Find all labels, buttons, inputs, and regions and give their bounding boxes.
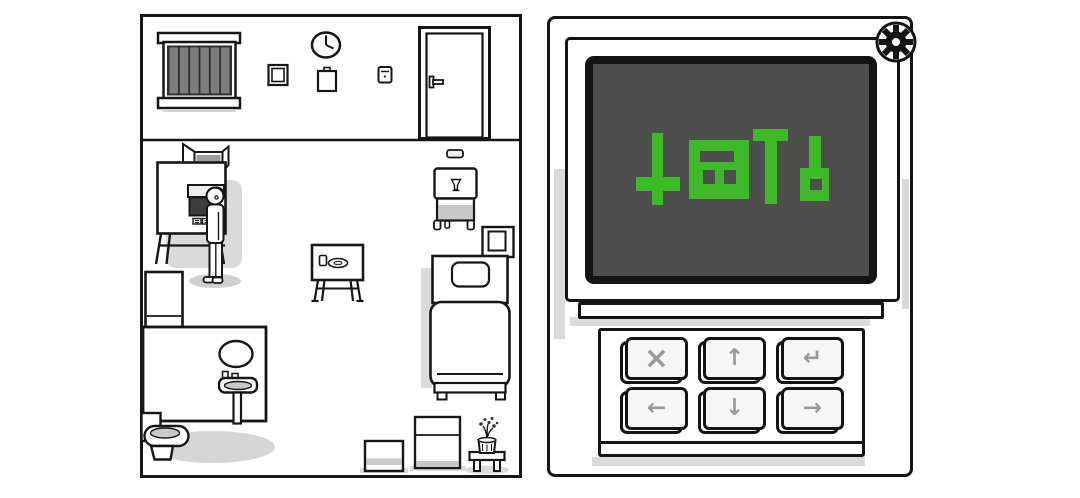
glyph-slotted-square-hole bbox=[700, 151, 734, 162]
key-right[interactable]: → bbox=[781, 387, 844, 430]
key-cancel[interactable]: × bbox=[625, 337, 688, 380]
small-picture-frame[interactable] bbox=[269, 65, 288, 85]
glyph-slotted-square-hole bbox=[703, 170, 715, 184]
glyph-slotted-square bbox=[689, 140, 749, 199]
screen-symbols bbox=[594, 67, 869, 276]
glyph-inverted-cross bbox=[636, 177, 680, 191]
arrow-up-icon: ↑ bbox=[725, 347, 744, 370]
key-down[interactable]: ↓ bbox=[703, 387, 766, 430]
terminal-panel: × ↑ ↵ ← ↓ → bbox=[547, 16, 913, 477]
monitor bbox=[565, 37, 900, 302]
bathroom-wall bbox=[143, 327, 266, 421]
bed[interactable] bbox=[431, 256, 510, 400]
settings-gear-icon[interactable] bbox=[873, 19, 919, 65]
monitor-shelf bbox=[578, 302, 884, 319]
glyph-slotted-square-hole bbox=[724, 170, 736, 184]
suitcase-large[interactable] bbox=[410, 417, 466, 471]
wall-notepad[interactable] bbox=[318, 68, 336, 92]
cancel-icon: × bbox=[644, 344, 669, 374]
arrow-left-icon: ← bbox=[647, 397, 666, 420]
key-enter[interactable]: ↵ bbox=[781, 337, 844, 380]
white-cabinet[interactable] bbox=[146, 272, 183, 327]
monitor-shadow-left bbox=[554, 169, 565, 339]
suitcase-small[interactable] bbox=[360, 441, 408, 473]
arrow-right-icon: → bbox=[803, 397, 822, 420]
picture-frame[interactable] bbox=[483, 227, 514, 257]
glyph-flag bbox=[809, 136, 821, 169]
wall-sign[interactable] bbox=[447, 150, 463, 158]
keypad-base bbox=[601, 441, 862, 454]
glyph-t-shape bbox=[765, 129, 777, 204]
game-screen: × ↑ ↵ ← ↓ → bbox=[0, 0, 1080, 498]
monitor-shadow-right bbox=[902, 179, 909, 309]
glyph-inverted-cross bbox=[652, 133, 663, 205]
arrow-down-icon: ↓ bbox=[725, 397, 744, 420]
enter-icon: ↵ bbox=[803, 347, 822, 370]
door[interactable] bbox=[420, 28, 490, 139]
glyph-flag-hole bbox=[810, 179, 822, 190]
serving-cart[interactable] bbox=[434, 169, 477, 230]
keypad-shadow bbox=[592, 457, 865, 466]
wall-clock[interactable] bbox=[312, 33, 340, 58]
key-left[interactable]: ← bbox=[625, 387, 688, 430]
room-panel bbox=[0, 0, 547, 498]
keypad: × ↑ ↵ ← ↓ → bbox=[598, 328, 865, 457]
window-blinds[interactable] bbox=[158, 33, 240, 111]
light-switch[interactable] bbox=[379, 67, 392, 83]
key-up[interactable]: ↑ bbox=[703, 337, 766, 380]
terminal-screen bbox=[585, 56, 877, 284]
mirror[interactable] bbox=[220, 341, 253, 367]
